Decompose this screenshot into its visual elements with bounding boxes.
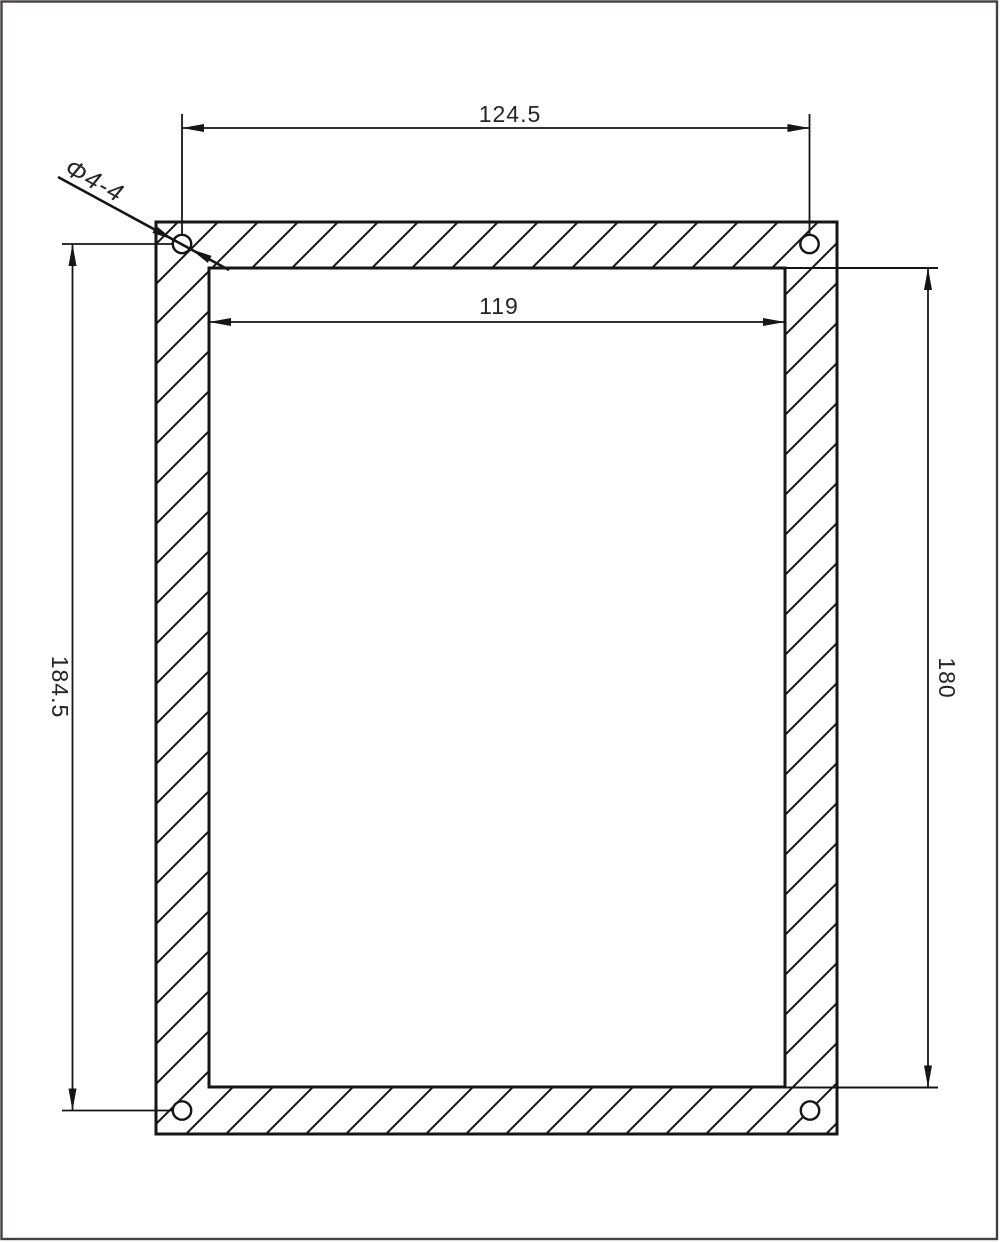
dim-arrow — [924, 1066, 932, 1088]
dim-top-width-label: 124.5 — [479, 101, 542, 127]
mounting-hole-bottom-left — [173, 1101, 191, 1119]
technical-drawing-canvas: 124.5 119 184.5 180 Φ4-4 — [0, 0, 1000, 1242]
dim-arrow — [788, 124, 810, 132]
dim-arrow — [69, 1089, 77, 1111]
dim-inner-width-label: 119 — [479, 293, 519, 319]
dim-right-height-label: 180 — [934, 657, 960, 698]
dim-top-width — [182, 114, 810, 235]
dim-arrow — [924, 268, 932, 290]
dim-left-height-label: 184.5 — [47, 656, 73, 719]
mounting-hole-top-right — [800, 235, 818, 253]
mounting-hole-bottom-right — [801, 1101, 819, 1119]
frame-inner-edge — [209, 268, 785, 1087]
dim-arrow — [69, 244, 77, 266]
dim-arrow — [182, 124, 204, 132]
panel-cutout-drawing: 124.5 119 184.5 180 Φ4-4 — [0, 0, 1000, 1242]
hole-callout-label: Φ4-4 — [60, 154, 129, 209]
